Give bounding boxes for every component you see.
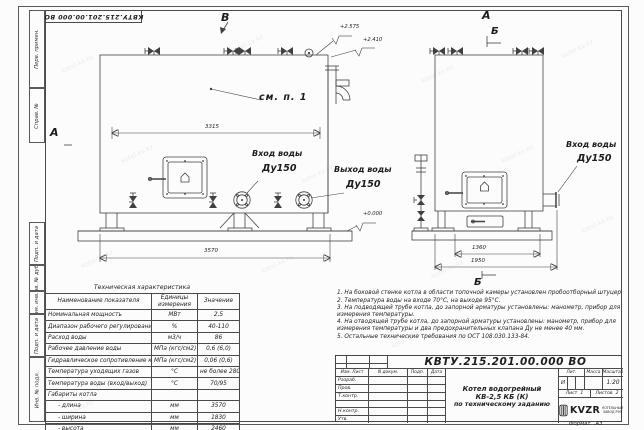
- ground-hatch-side: [412, 231, 552, 240]
- spec-header-row: Наименование показателя Единицы измерени…: [46, 294, 240, 310]
- valve-icon: [448, 47, 463, 55]
- note-item: 5. Остальные технические требования по О…: [337, 334, 624, 341]
- view-label-a-front: А: [50, 127, 59, 138]
- outlet-flange: [296, 192, 312, 208]
- spec-row: Габариты котла: [46, 389, 240, 400]
- rev-row-nkontr: Н.контр.: [336, 408, 369, 416]
- spec-col-name: Наименование показателя: [46, 294, 152, 310]
- section-mark-b-bottom: [482, 271, 496, 279]
- rev-row-blank: [336, 401, 369, 408]
- inlet-flange: [234, 192, 250, 208]
- spec-col-value: Значение: [198, 294, 240, 310]
- side-inlet-nozzle: [543, 192, 559, 208]
- front-inlet-dn: Ду150: [262, 164, 296, 174]
- scale-label: Масштаб: [603, 369, 623, 377]
- title-block-extra-grid: [336, 356, 388, 369]
- view-label-b-bottom: Б: [474, 278, 482, 288]
- lit-label: Лит.: [559, 369, 585, 377]
- inlet-leader: [247, 181, 258, 193]
- drain-valve-icon: [274, 193, 282, 208]
- sheet-cell: Лист1: [559, 390, 591, 398]
- see-note-leader: [210, 88, 261, 100]
- product-name: Котел водогрейный КВ-2,5 КБ (К) по техни…: [446, 369, 559, 423]
- door-sight-glass: [181, 173, 189, 182]
- spec-row: - ширинамм1830: [46, 412, 240, 423]
- section-mark-b-top: [487, 36, 501, 47]
- sheet-label: Лист: [566, 391, 578, 396]
- side-inlet-leader: [558, 166, 577, 192]
- dim-label-3315: 3315: [205, 125, 219, 131]
- rev-col-izm-list: Изм. Лист: [336, 369, 369, 377]
- title-block: КВТУ.215.201.00.000 ВО Изм. Лист N докум…: [335, 355, 622, 422]
- spec-row: Рабочее давление водыМПа (кгс/см2)0,6 (6…: [46, 344, 240, 355]
- dim-1360: [455, 234, 540, 257]
- spec-row: Температура уходящих газов°Сне более 280: [46, 366, 240, 377]
- note-item: 4. На отводящей трубе котла, до запорной…: [337, 319, 624, 332]
- lit-value: И: [559, 377, 568, 390]
- rev-row-prov: Пров.: [336, 385, 369, 393]
- valve-icon: [278, 47, 293, 55]
- mass-value: [585, 377, 603, 390]
- side-inlet-dn: Ду150: [577, 154, 611, 164]
- valve-icon: [430, 47, 445, 55]
- boiler-logo-icon: [559, 403, 568, 418]
- rev-row-utv: Утв.: [336, 416, 369, 423]
- elevation-marks: [316, 36, 376, 231]
- sheets-label: Листов: [595, 391, 612, 396]
- view-label-v: В: [221, 12, 229, 23]
- drawing-sheet: kotel-kv.kz kotel-kv.kz kotel-kv.kz kote…: [0, 0, 644, 430]
- elevation-2575: +2.575: [340, 25, 359, 30]
- spec-table: Наименование показателя Единицы измерени…: [45, 293, 240, 430]
- technical-notes: 1. На боковой стенке котла в области топ…: [337, 290, 624, 341]
- rev-col-podp: Подп.: [408, 369, 428, 377]
- format-label: Формат А3: [569, 421, 603, 427]
- ash-drawer: [467, 216, 503, 227]
- ground-hatch-front: [78, 231, 352, 241]
- spec-row: - длинамм3570: [46, 401, 240, 412]
- elevation-0000: +0.000: [363, 212, 382, 217]
- outlet-leader: [311, 193, 344, 198]
- spec-row: Гидравлическое сопротивление котлаМПа (к…: [46, 355, 240, 366]
- product-name-line3: по техническому заданию: [454, 401, 550, 408]
- front-outlet-label: Выход воды: [334, 166, 392, 174]
- sheets-cell: Листов2: [591, 390, 623, 398]
- side-base-frame: [432, 211, 540, 231]
- elevation-2410: +2.410: [363, 38, 382, 43]
- dim-label-1360: 1360: [472, 246, 486, 252]
- product-name-line2: КВ-2,5 КБ (К): [476, 393, 529, 401]
- front-outlet-dn: Ду150: [346, 180, 380, 190]
- note-item: 2. Температура воды на входе 70°С, на вы…: [337, 298, 624, 305]
- logo-text: KVZR: [570, 405, 600, 416]
- dim-label-1950: 1950: [471, 259, 485, 265]
- view-label-a-side: А: [482, 10, 491, 21]
- valve-icon: [145, 47, 160, 55]
- front-inlet-label: Вход воды: [252, 150, 302, 158]
- door-sight-glass: [481, 182, 489, 191]
- spec-col-units: Единицы измерения: [152, 294, 198, 310]
- front-base-frame: [100, 213, 331, 231]
- note-item: 1. На боковой стенке котла в области топ…: [337, 290, 624, 297]
- format-value: А3: [596, 421, 603, 427]
- rev-col-data: Дата: [428, 369, 446, 377]
- see-note-callout: см. п. 1: [259, 93, 307, 103]
- front-view-drawing: [64, 22, 376, 262]
- document-designation: КВТУ.215.201.00.000 ВО: [388, 356, 623, 369]
- dim-label-3570: 3570: [204, 249, 218, 255]
- rev-row-razrab: Разраб.: [336, 377, 369, 385]
- flue-outlet: [325, 66, 350, 213]
- valve-icon: [529, 47, 544, 55]
- spec-table-title: Техническая характеристика: [45, 284, 239, 291]
- spec-row: Номинальная мощностьМВт2,5: [46, 310, 240, 321]
- rev-row-tkontr: Т.контр.: [336, 393, 369, 401]
- side-piping: [414, 155, 428, 231]
- spec-row: - высотамм2460: [46, 423, 240, 430]
- drain-valve-icon: [209, 193, 217, 208]
- view-label-b-side: Б: [491, 27, 499, 37]
- side-furnace-door: [445, 172, 507, 208]
- sheet-value: 1: [580, 391, 583, 396]
- side-inlet-label: Вход воды: [566, 141, 616, 149]
- rev-col-docnum: N докум.: [369, 369, 408, 377]
- format-word: Формат: [569, 421, 591, 427]
- manufacturer-logo: KVZR КОТЕЛЬНЫЙ ЗАВОД РЭП: [559, 398, 623, 423]
- scale-value: 1:20: [603, 377, 623, 390]
- drain-valve-icon: [129, 193, 137, 208]
- mass-label: Масса: [585, 369, 603, 377]
- spec-row: Температура воды (вход/выход)°С70/95: [46, 378, 240, 389]
- furnace-door: [148, 157, 207, 198]
- product-name-line1: Котел водогрейный: [463, 385, 542, 393]
- spec-row: Диапазон рабочего регулирования%40-110: [46, 321, 240, 332]
- side-view-drawing: [412, 36, 577, 279]
- spec-row: Расход водым3/ч86: [46, 332, 240, 343]
- sheets-value: 2: [616, 391, 619, 396]
- logo-subtext: КОТЕЛЬНЫЙ ЗАВОД РЭП: [602, 407, 623, 414]
- note-item: 3. На подводящей трубе котла, до запорно…: [337, 305, 624, 318]
- valve-icon: [513, 47, 528, 55]
